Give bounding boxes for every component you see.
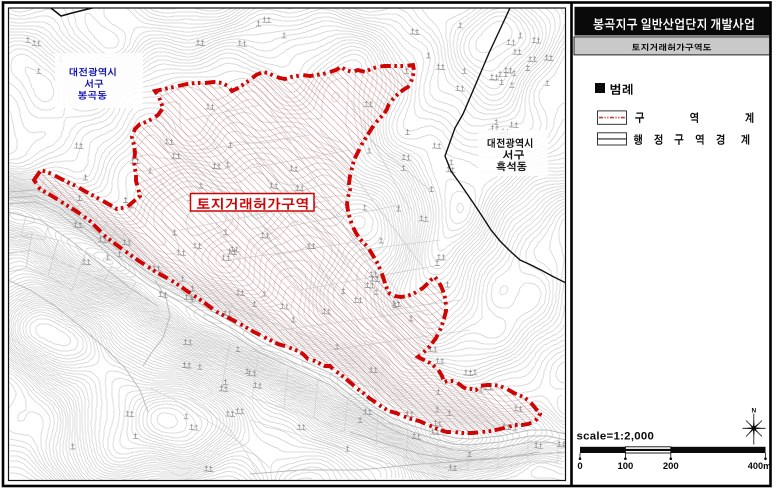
svg-text:0: 0	[577, 461, 582, 472]
svg-text:scale=1:2,000: scale=1:2,000	[577, 431, 655, 443]
svg-text:200: 200	[663, 461, 679, 472]
svg-text:400m: 400m	[748, 461, 772, 471]
svg-text:N: N	[751, 408, 756, 415]
svg-text:100: 100	[617, 461, 633, 472]
